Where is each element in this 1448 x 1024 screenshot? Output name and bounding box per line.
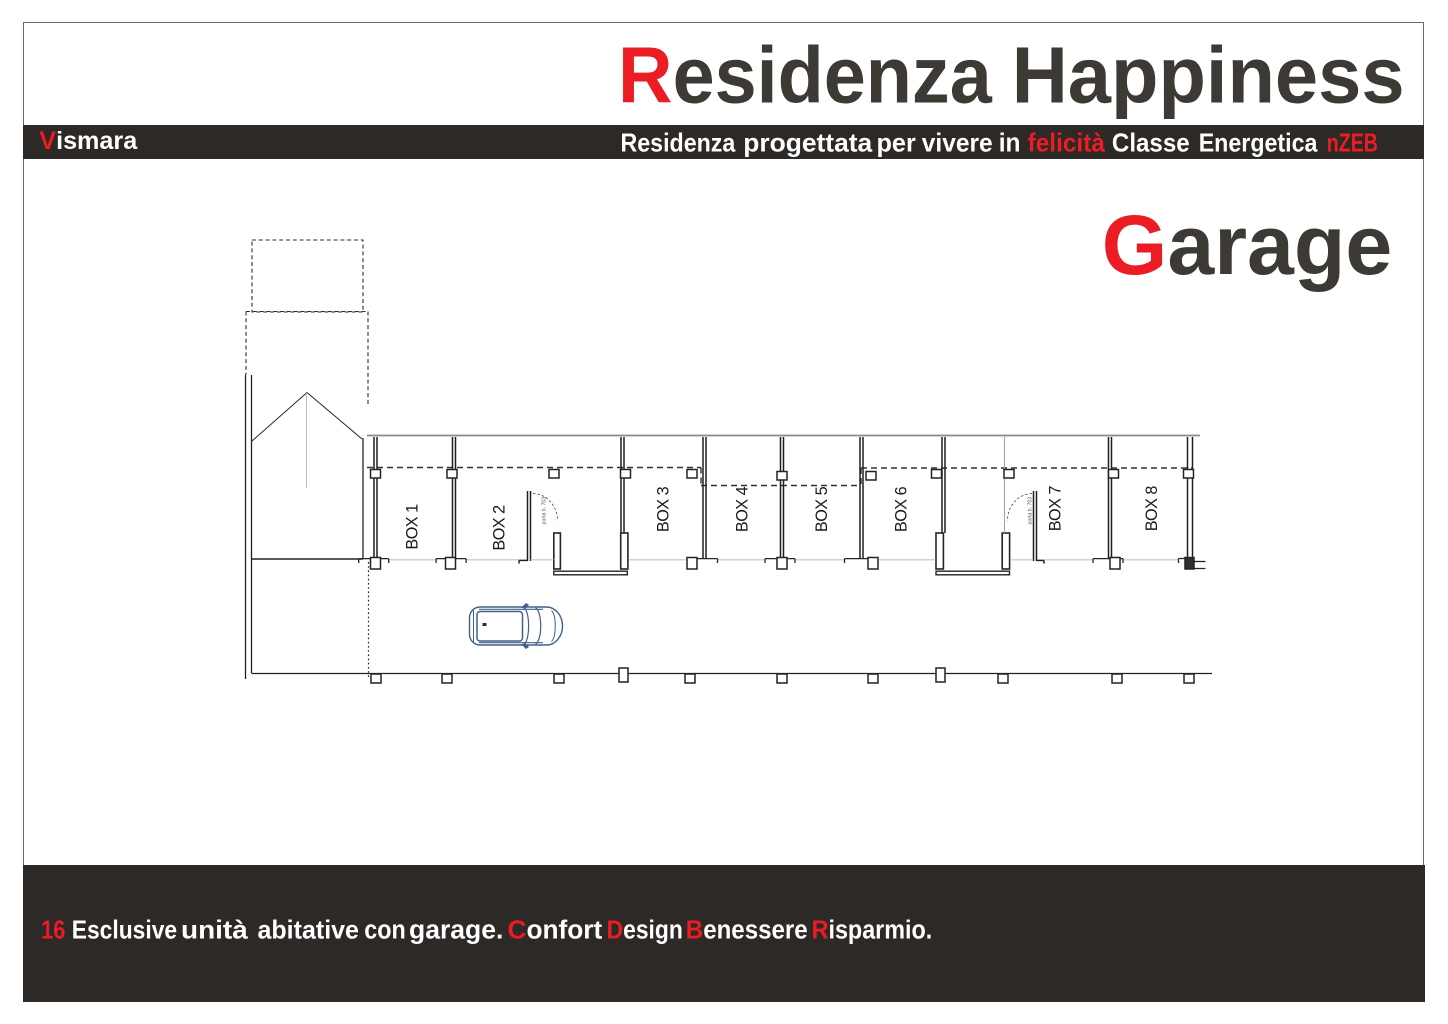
svg-text:R: R bbox=[812, 916, 829, 944]
svg-text:progettata: progettata bbox=[743, 130, 873, 158]
svg-text:nZEB: nZEB bbox=[1327, 128, 1378, 157]
svg-text:Residenza: Residenza bbox=[621, 130, 736, 158]
svg-text:BOX 3: BOX 3 bbox=[655, 486, 673, 532]
svg-text:per: per bbox=[877, 129, 916, 157]
svg-text:felicità: felicità bbox=[1028, 129, 1105, 158]
svg-text:16: 16 bbox=[41, 917, 65, 945]
svg-text:V: V bbox=[39, 127, 56, 155]
svg-text:R: R bbox=[618, 32, 673, 120]
svg-text:ismara: ismara bbox=[56, 127, 138, 155]
svg-text:vivere: vivere bbox=[922, 129, 993, 158]
svg-text:esign: esign bbox=[623, 916, 683, 944]
svg-text:unità: unità bbox=[181, 915, 248, 944]
svg-text:enessere: enessere bbox=[703, 917, 807, 945]
svg-text:porta b. 703: porta b. 703 bbox=[1028, 497, 1034, 525]
svg-text:abitative: abitative bbox=[258, 916, 359, 944]
svg-text:C: C bbox=[508, 917, 527, 945]
svg-text:G: G bbox=[1102, 198, 1168, 292]
svg-text:Happiness: Happiness bbox=[1012, 31, 1405, 120]
svg-text:BOX 4: BOX 4 bbox=[733, 486, 751, 532]
svg-text:isparmio.: isparmio. bbox=[828, 916, 932, 944]
svg-text:in: in bbox=[999, 129, 1021, 158]
svg-text:BOX 6: BOX 6 bbox=[893, 486, 911, 532]
svg-text:onfort: onfort bbox=[526, 917, 602, 945]
svg-text:BOX 5: BOX 5 bbox=[813, 486, 831, 532]
svg-text:BOX 8: BOX 8 bbox=[1143, 486, 1161, 532]
svg-text:Classe: Classe bbox=[1112, 130, 1190, 158]
svg-text:garage.: garage. bbox=[409, 915, 503, 944]
svg-text:esidenza: esidenza bbox=[673, 32, 993, 120]
svg-text:porta b. 703: porta b. 703 bbox=[542, 497, 548, 525]
svg-text:Energetica: Energetica bbox=[1199, 130, 1318, 158]
svg-text:con: con bbox=[364, 916, 406, 944]
svg-text:BOX 2: BOX 2 bbox=[490, 505, 508, 551]
svg-text:BOX 1: BOX 1 bbox=[403, 504, 421, 550]
svg-text:arage: arage bbox=[1167, 198, 1392, 292]
svg-text:BOX 7: BOX 7 bbox=[1046, 486, 1064, 532]
svg-text:D: D bbox=[607, 916, 624, 944]
svg-text:B: B bbox=[686, 917, 703, 945]
svg-text:Esclusive: Esclusive bbox=[72, 916, 177, 944]
